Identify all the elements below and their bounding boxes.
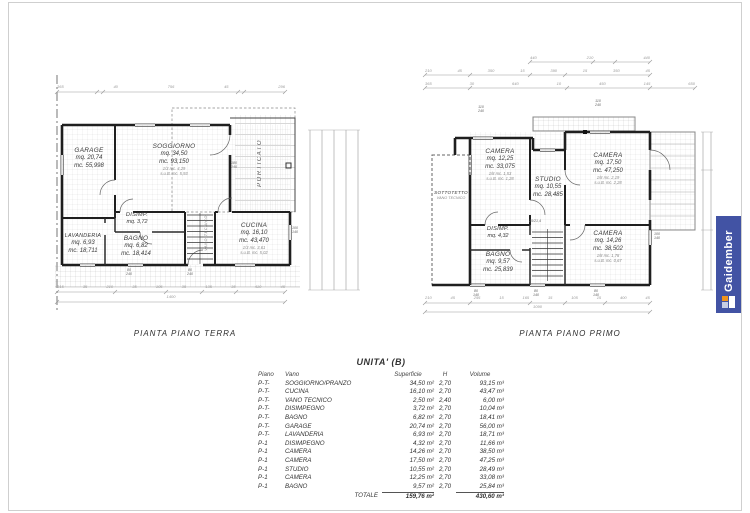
cell-h: 2,70 bbox=[434, 466, 456, 475]
table-row: P-T- VANO TECNICO 2,50 m² 2,40 6,00 m³ bbox=[258, 397, 504, 406]
dimension-total: 1090 bbox=[425, 304, 650, 309]
room-label-bagno-terra: BAGNO mq. 6,82 mc. 18,414 bbox=[110, 235, 162, 259]
cell-h: 2,70 bbox=[434, 457, 456, 466]
col-header-vano: Vano bbox=[285, 371, 382, 380]
cell-vano: DISIMPEGNO bbox=[285, 440, 382, 449]
unit-area-table: UNITA' (B) Piano Vano Superficie H Volum… bbox=[258, 357, 504, 502]
table-row: P-T- GARAGE 20,74 m² 2,70 56,00 m³ bbox=[258, 423, 504, 432]
cell-vano: CAMERA bbox=[285, 457, 382, 466]
cell-volume: 18,71 m³ bbox=[456, 431, 504, 440]
dimension-row-bottom: 3153521035105351353541045 bbox=[57, 284, 285, 289]
table-header-row: Piano Vano Superficie H Volume bbox=[258, 371, 504, 380]
table-total-row: TOTALE 159,76 m² 430,60 m³ bbox=[258, 492, 504, 502]
cell-volume: 28,49 m³ bbox=[456, 466, 504, 475]
cell-piano: P-T- bbox=[258, 405, 285, 414]
cell-volume: 38,50 m³ bbox=[456, 448, 504, 457]
cell-vano: DISIMPEGNO bbox=[285, 405, 382, 414]
col-header-superficie: Superficie bbox=[382, 371, 434, 380]
table-row: P-T- DISIMPEGNO 3,72 m² 2,70 10,04 m³ bbox=[258, 405, 504, 414]
cell-vano: CAMERA bbox=[285, 448, 382, 457]
cell-h: 2,70 bbox=[434, 414, 456, 423]
cell-volume: 25,84 m³ bbox=[456, 483, 504, 492]
table-row: P-1 BAGNO 9,57 m² 2,70 25,84 m³ bbox=[258, 483, 504, 492]
gaidember-brand-label: Gaidember bbox=[723, 230, 735, 292]
cell-h: 2,70 bbox=[434, 474, 456, 483]
table-row: P-T- SOGGIORNO/PRANZO 34,50 m² 2,70 93,1… bbox=[258, 380, 504, 389]
cell-superficie: 2,50 m² bbox=[382, 397, 434, 406]
window-size-label: 110 240 bbox=[478, 105, 484, 113]
terra-walls-drawing bbox=[40, 55, 380, 320]
dimension-row-top1: 440210440 bbox=[530, 55, 650, 60]
table-row: P-1 DISIMPEGNO 4,32 m² 2,70 11,66 m³ bbox=[258, 440, 504, 449]
cell-piano: P-1 bbox=[258, 483, 285, 492]
room-label-bagno-primo: BAGNO mq. 9,57 mc. 25,839 bbox=[472, 251, 524, 275]
cell-piano: P-1 bbox=[258, 466, 285, 475]
cell-vano: VANO TECNICO bbox=[285, 397, 382, 406]
cell-h: 2,40 bbox=[434, 397, 456, 406]
table-row: P-1 CAMERA 14,26 m² 2,70 38,50 m³ bbox=[258, 448, 504, 457]
cell-h: 2,70 bbox=[434, 483, 456, 492]
table-row: P-T- BAGNO 6,82 m² 2,70 18,41 m³ bbox=[258, 414, 504, 423]
gaidember-logo-icon bbox=[722, 296, 735, 308]
room-label-disimp-terra: DISIMP. mq. 3,72 bbox=[114, 212, 160, 226]
cell-volume: 33,08 m³ bbox=[456, 474, 504, 483]
total-label: TOTALE bbox=[285, 492, 382, 502]
cell-h: 2,70 bbox=[434, 388, 456, 397]
cell-volume: 6,00 m³ bbox=[456, 397, 504, 406]
room-label-garage: GARAGE mq. 20,74 mc. 55,998 bbox=[64, 147, 114, 171]
cell-vano: SOGGIORNO/PRANZO bbox=[285, 380, 382, 389]
table-title: UNITA' (B) bbox=[258, 357, 504, 367]
col-header-volume: Volume bbox=[456, 371, 504, 380]
cell-superficie: 10,55 m² bbox=[382, 466, 434, 475]
cell-piano: P-1 bbox=[258, 440, 285, 449]
cell-superficie: 14,26 m² bbox=[382, 448, 434, 457]
cell-piano: P-1 bbox=[258, 457, 285, 466]
cell-h: 2,70 bbox=[434, 440, 456, 449]
dimension-row-top3: 3653064010450145650 bbox=[425, 81, 695, 86]
room-label-lavanderia: LAVANDERIA mq. 6,93 mc. 18,711 bbox=[58, 233, 108, 256]
table-row: P-T- CUCINA 16,10 m² 2,70 43,47 m³ bbox=[258, 388, 504, 397]
cell-volume: 93,15 m³ bbox=[456, 380, 504, 389]
room-label-camera-ne: CAMERA mq. 17,50 mc. 47,250 1/8 mc. 2,19… bbox=[575, 152, 641, 185]
room-label-disimp-primo: DISIMP. mq. 4,32 bbox=[473, 226, 523, 240]
table-row: P-T- LAVANDERIA 6,93 m² 2,70 18,71 m³ bbox=[258, 431, 504, 440]
cell-vano: LAVANDERIA bbox=[285, 431, 382, 440]
cell-superficie: 9,57 m² bbox=[382, 483, 434, 492]
room-label-soggiorno: SOGGIORNO mq. 34,50 mc. 93,150 1/3 mc. 4… bbox=[142, 143, 206, 176]
room-label-cucina: CUCINA mq. 16,10 mc. 43,470 1/3 mc. 3,61… bbox=[223, 222, 285, 255]
cell-volume: 11,66 m³ bbox=[456, 440, 504, 449]
cell-superficie: 34,50 m² bbox=[382, 380, 434, 389]
window-size-label: 110 240 bbox=[595, 99, 601, 107]
cell-volume: 56,00 m³ bbox=[456, 423, 504, 432]
cell-h: 2,70 bbox=[434, 448, 456, 457]
room-label-camera-se: CAMERA mq. 14,26 mc. 38,502 1/8 mc. 1,78… bbox=[573, 230, 643, 263]
cell-volume: 18,41 m³ bbox=[456, 414, 504, 423]
total-volume: 430,60 m³ bbox=[456, 492, 504, 502]
cell-superficie: 6,82 m² bbox=[382, 414, 434, 423]
window-size-label: 180 140 bbox=[231, 161, 237, 169]
room-label-camera-nw: CAMERA mq. 12,25 mc. 33,075 1/8 mc. 1,53… bbox=[472, 148, 528, 181]
window-size-label: 100 140 bbox=[654, 232, 660, 240]
cell-h: 2,70 bbox=[434, 380, 456, 389]
dimension-row-bottom: 2104529515165151051540045 bbox=[425, 295, 650, 300]
cell-superficie: 17,50 m² bbox=[382, 457, 434, 466]
cell-vano: GARAGE bbox=[285, 423, 382, 432]
cell-superficie: 4,32 m² bbox=[382, 440, 434, 449]
cell-vano: CUCINA bbox=[285, 388, 382, 397]
cell-volume: 10,04 m³ bbox=[456, 405, 504, 414]
cell-volume: 43,47 m³ bbox=[456, 388, 504, 397]
room-label-studio: STUDIO mq. 10,55 mc. 28,485 bbox=[523, 176, 573, 200]
cell-piano: P-T- bbox=[258, 397, 285, 406]
porticato-label: PORTICATO bbox=[257, 139, 263, 187]
cell-vano: BAGNO bbox=[285, 414, 382, 423]
cell-superficie: 20,74 m² bbox=[382, 423, 434, 432]
gaidember-banner[interactable]: Gaidember bbox=[716, 216, 741, 313]
cell-h: 2,70 bbox=[434, 423, 456, 432]
window-size-label: 80 240 bbox=[187, 268, 193, 276]
table-row: P-1 CAMERA 17,50 m² 2,70 47,25 m³ bbox=[258, 457, 504, 466]
floor-plan-terra: GARAGE mq. 20,74 mc. 55,998 SOGGIORNO mq… bbox=[40, 55, 380, 320]
cell-piano: P-T- bbox=[258, 414, 285, 423]
cell-superficie: 16,10 m² bbox=[382, 388, 434, 397]
vano-tecnico-label-terra: VANO TECNICO bbox=[204, 215, 208, 251]
cell-piano: P-T- bbox=[258, 388, 285, 397]
cell-piano: P-1 bbox=[258, 448, 285, 457]
cell-h: 2,70 bbox=[434, 431, 456, 440]
room-label-sottotetto: SOTTOTETTO VANO TECNICO bbox=[429, 190, 473, 200]
cell-vano: CAMERA bbox=[285, 474, 382, 483]
table-row: P-1 STUDIO 10,55 m² 2,70 28,49 m³ bbox=[258, 466, 504, 475]
dimension-total: 1400 bbox=[57, 294, 285, 299]
cell-volume: 47,25 m³ bbox=[456, 457, 504, 466]
dimension-row-top2: 21045350153901535045 bbox=[425, 68, 650, 73]
cell-piano: P-1 bbox=[258, 474, 285, 483]
window-size-label: 100 140 bbox=[292, 226, 298, 234]
dimension-row-top: 3654075645296 bbox=[57, 84, 285, 89]
cell-piano: P-T- bbox=[258, 431, 285, 440]
total-superficie: 159,76 m² bbox=[382, 492, 434, 502]
window-size-label: 80 240 bbox=[126, 268, 132, 276]
table-rows: P-T- SOGGIORNO/PRANZO 34,50 m² 2,70 93,1… bbox=[258, 380, 504, 492]
col-header-piano: Piano bbox=[258, 371, 285, 380]
caption-piano-primo: PIANTA PIANO PRIMO bbox=[480, 329, 660, 338]
floor-plan-primo: CAMERA mq. 12,25 mc. 33,075 1/8 mc. 1,53… bbox=[415, 50, 725, 320]
caption-piano-terra: PIANTA PIANO TERRA bbox=[95, 329, 275, 338]
cell-piano: P-T- bbox=[258, 380, 285, 389]
cell-superficie: 3,72 m² bbox=[382, 405, 434, 414]
cell-superficie: 6,93 m² bbox=[382, 431, 434, 440]
stair-note: 25/21,4 bbox=[529, 219, 541, 223]
cell-vano: BAGNO bbox=[285, 483, 382, 492]
cell-superficie: 12,25 m² bbox=[382, 474, 434, 483]
col-header-h: H bbox=[434, 371, 456, 380]
cell-h: 2,70 bbox=[434, 405, 456, 414]
cell-piano: P-T- bbox=[258, 423, 285, 432]
cell-vano: STUDIO bbox=[285, 466, 382, 475]
table-row: P-1 CAMERA 12,25 m² 2,70 33,08 m³ bbox=[258, 474, 504, 483]
